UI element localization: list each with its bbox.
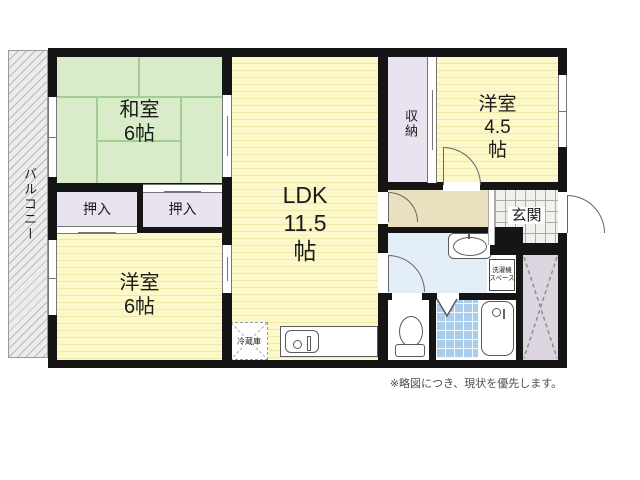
window-washitsu: [48, 97, 57, 177]
wall-outer-bottom: [48, 360, 567, 368]
sliding-door-oshiire-right: [143, 184, 222, 193]
sliding-door-yoshitsu6-ldk: [222, 245, 232, 293]
yoshitsu45-label: 洋室 4.5 帖: [437, 93, 558, 163]
dashed-x-icon: [523, 255, 558, 360]
kitchen-sink: [285, 330, 319, 353]
oshiire-left-text: 押入: [83, 201, 111, 217]
refrigerator-label: 冷蔵庫: [231, 337, 267, 347]
genkan-label: 玄関: [495, 207, 558, 225]
yoshitsu6-size: 6帖: [57, 295, 222, 319]
balcony-area: バルコニー: [8, 50, 48, 358]
ldk-unit: 帖: [232, 237, 378, 265]
shuno-label: 収納: [398, 96, 417, 152]
laundry-space-box: 洗濯機 スペース: [489, 259, 515, 291]
toilet-bowl: [399, 316, 423, 347]
door-gap-washroom: [378, 253, 388, 293]
balcony-label: バルコニー: [16, 149, 36, 259]
washbasin-bowl-icon: [453, 237, 487, 256]
refrigerator-label-text: 冷蔵庫: [234, 337, 264, 346]
washbasin-faucet-icon: [468, 233, 470, 239]
door-gap-hallway: [378, 192, 388, 224]
oshiire-left-label: 押入: [57, 201, 137, 218]
sliding-door-oshiire-left: [57, 226, 137, 234]
tatami-line: [138, 57, 140, 98]
ldk-label: LDK 11.5 帖: [232, 181, 378, 265]
disclaimer-note: ※略図につき、現状を優先します。: [356, 378, 596, 391]
bathtub-drain-icon: [492, 308, 501, 317]
yoshitsu45-name: 洋室: [437, 93, 558, 116]
yoshitsu6-name: 洋室: [57, 271, 222, 295]
wall-outer-left: [48, 48, 57, 368]
window-yoshitsu45: [558, 75, 567, 147]
genkan-text: 玄関: [508, 207, 544, 224]
laundry-label: 洗濯機 スペース: [484, 267, 520, 284]
yoshitsu6-label: 洋室 6帖: [57, 271, 222, 320]
balcony-label-text: バルコニー: [22, 167, 37, 242]
entrance-door-gap: [558, 192, 567, 233]
hatched-void-area: [523, 255, 558, 360]
refrigerator-space: 冷蔵庫: [230, 322, 268, 360]
wall-outer-top: [48, 48, 567, 57]
folding-door-icon: [435, 298, 461, 318]
oshiire-right-label: 押入: [143, 201, 222, 218]
kitchen-sink-drain-icon: [293, 340, 302, 349]
kitchen-faucet-icon: [307, 336, 311, 351]
genkan-step: [488, 190, 495, 245]
disclaimer-text: ※略図につき、現状を優先します。: [390, 378, 562, 390]
yoshitsu45-size: 4.5: [437, 116, 558, 139]
oshiire-right-text: 押入: [169, 201, 197, 217]
sliding-door-shuno: [427, 57, 437, 183]
washitsu-name: 和室: [57, 98, 222, 122]
door-arc-entrance: [567, 195, 605, 233]
window-yoshitsu6: [48, 240, 57, 315]
bathtub-faucet-icon: [503, 309, 505, 319]
floor-plan: バルコニー 冷蔵庫: [0, 0, 640, 480]
ldk-size: 11.5: [232, 209, 378, 237]
wall-bath-right: [516, 227, 523, 360]
shuno-text: 収納: [403, 109, 418, 139]
sliding-door-washitsu-ldk: [222, 95, 232, 177]
wall-genkan-bottom: [490, 243, 567, 255]
ldk-name: LDK: [232, 181, 378, 209]
washitsu-size: 6帖: [57, 122, 222, 146]
yoshitsu45-unit: 帖: [437, 139, 558, 162]
laundry-label-line2: スペース: [484, 275, 520, 283]
toilet-tank: [395, 344, 425, 357]
washitsu-label: 和室 6帖: [57, 98, 222, 147]
door-gap-toilet: [392, 293, 422, 301]
